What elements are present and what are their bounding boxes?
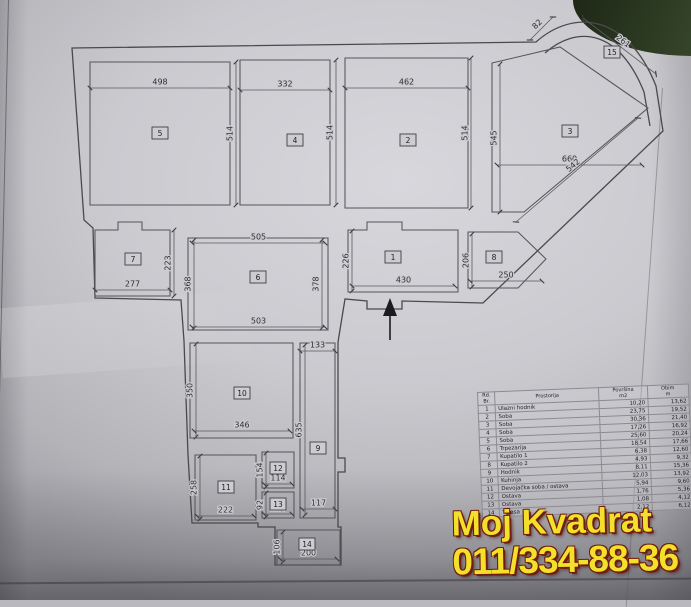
dimension: 503 bbox=[190, 317, 328, 330]
dimension-label: 350 bbox=[186, 383, 195, 398]
room-number: 4 bbox=[287, 134, 303, 146]
room-number-label: 4 bbox=[293, 136, 298, 145]
dimension: 514 bbox=[226, 60, 239, 208]
dimension: 498 bbox=[88, 78, 233, 91]
room-number-label: 15 bbox=[607, 48, 617, 57]
room-number-label: 6 bbox=[256, 273, 261, 282]
room-number-label: 12 bbox=[273, 464, 283, 473]
room-number-label: 5 bbox=[158, 129, 163, 138]
dimension-label: 635 bbox=[295, 422, 304, 437]
room-number: 7 bbox=[125, 253, 141, 265]
room-number-label: 1 bbox=[391, 253, 396, 262]
dimension: 82 bbox=[527, 17, 556, 40]
dimension: 514 bbox=[326, 58, 339, 208]
dimension: 545 bbox=[490, 62, 503, 215]
room-number: 2 bbox=[400, 134, 416, 146]
room-number-label: 10 bbox=[237, 389, 247, 398]
dimension-label: 368 bbox=[184, 276, 193, 291]
dimension-label: 222 bbox=[218, 506, 233, 515]
header-rb: Rd.Br. bbox=[478, 392, 496, 406]
dimension-label: 206 bbox=[462, 253, 471, 268]
dimension-label: 114 bbox=[270, 474, 285, 483]
dimension-label: 117 bbox=[311, 499, 326, 508]
dimension-label: 258 bbox=[190, 480, 199, 495]
dimension-label: 154 bbox=[256, 462, 265, 477]
room-number: 14 bbox=[299, 538, 315, 550]
dimension: 368 bbox=[184, 238, 197, 331]
room-number-label: 3 bbox=[568, 127, 573, 136]
room-number-label: 9 bbox=[316, 444, 321, 453]
dimension: 378 bbox=[312, 238, 325, 331]
room-legend-table: Rd.Br. Prostorija Površinam2 Obimm 1Ulaz… bbox=[477, 383, 691, 517]
room-number-label: 11 bbox=[221, 483, 231, 492]
dimension: 114 bbox=[262, 474, 295, 487]
room-number: 3 bbox=[562, 125, 578, 137]
room-number-label: 2 bbox=[406, 136, 411, 145]
dimension: 430 bbox=[350, 276, 458, 289]
dimension: 222 bbox=[195, 506, 257, 519]
entrance-arrow bbox=[383, 298, 397, 340]
dimension-label: 82 bbox=[530, 17, 544, 31]
dimension: 514 bbox=[461, 56, 474, 211]
room-number-label: 8 bbox=[492, 253, 497, 262]
dimension: 346 bbox=[192, 421, 293, 434]
dimension-label: 514 bbox=[461, 125, 470, 140]
dimension-label: 346 bbox=[234, 421, 249, 430]
dimension-label: 250 bbox=[498, 271, 513, 280]
room-number: 6 bbox=[250, 271, 266, 283]
dimension-label: 226 bbox=[342, 253, 351, 268]
dimension-label: 498 bbox=[152, 78, 167, 87]
dimension-label: 133 bbox=[310, 341, 325, 350]
room-number: 5 bbox=[152, 127, 168, 139]
dimension-label: 545 bbox=[490, 130, 499, 145]
room-number: 11 bbox=[218, 481, 234, 493]
room-number: 9 bbox=[310, 442, 326, 454]
room-number: 13 bbox=[270, 498, 286, 510]
room-number: 8 bbox=[486, 251, 502, 263]
dimension: 635 bbox=[295, 343, 308, 518]
dimension-label: 378 bbox=[312, 276, 321, 291]
room-number: 15 bbox=[604, 46, 620, 58]
dimension: 277 bbox=[93, 280, 173, 293]
dimension-label: 505 bbox=[251, 233, 266, 242]
room-number: 10 bbox=[234, 387, 250, 399]
dimension-label: 92 bbox=[256, 500, 265, 510]
room-number: 1 bbox=[385, 251, 401, 263]
dimension: 332 bbox=[238, 80, 333, 93]
terrace-inner-wall bbox=[545, 36, 650, 126]
room-number-label: 13 bbox=[273, 500, 283, 509]
watermark: Moj Kvadrat 011/334-88-36 bbox=[451, 500, 691, 581]
dimension-label: 430 bbox=[396, 276, 411, 285]
dimension-label: 332 bbox=[277, 80, 292, 89]
room-number: 12 bbox=[270, 462, 286, 474]
dimension: 462 bbox=[343, 78, 471, 91]
watermark-phone: 011/334-88-36 bbox=[452, 538, 691, 581]
dimension: 505 bbox=[190, 233, 328, 246]
dimension-label: 106 bbox=[273, 539, 282, 554]
dimension-label: 223 bbox=[164, 255, 173, 270]
room-number-label: 14 bbox=[302, 540, 312, 549]
dimension-label: 277 bbox=[125, 280, 140, 289]
dimension-label: 503 bbox=[251, 317, 266, 326]
room-number-label: 7 bbox=[131, 255, 136, 264]
dimension-label: 514 bbox=[326, 125, 335, 140]
dimension-label: 514 bbox=[226, 126, 235, 141]
dimension-label: 462 bbox=[399, 78, 414, 87]
